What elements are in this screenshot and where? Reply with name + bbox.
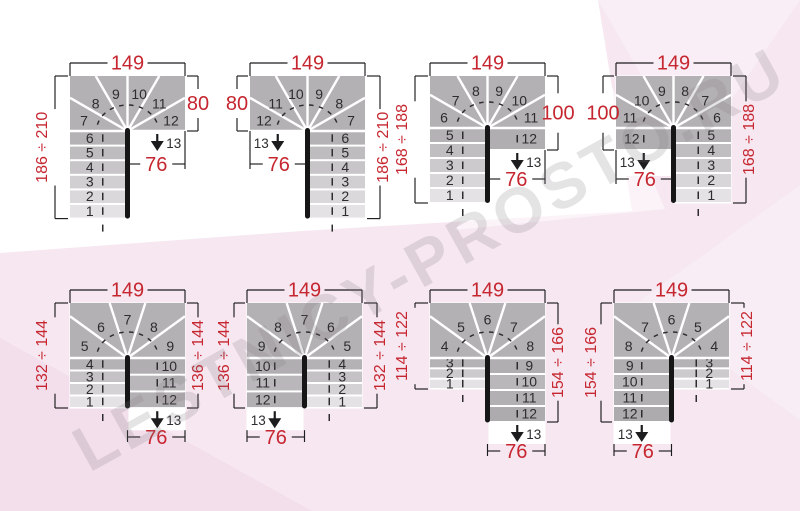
- winder-number: 6: [484, 312, 492, 328]
- exit-step-number: 13: [254, 136, 269, 151]
- winder-number: 9: [166, 338, 174, 354]
- winder-number: 8: [472, 83, 480, 99]
- step: [70, 176, 126, 189]
- winder-number: 7: [80, 113, 88, 129]
- exit-side-dimension-label: 136 ÷ 144: [190, 320, 207, 391]
- exit-step-number: 13: [618, 427, 633, 442]
- exit-width-dimension-label: 76: [268, 154, 290, 176]
- step: [309, 132, 365, 145]
- entry-dimension-label: 186 ÷ 210: [34, 112, 51, 183]
- winder-number: 11: [623, 110, 638, 126]
- width-dimension-label: 149: [471, 280, 504, 302]
- step-number: 11: [162, 375, 177, 391]
- exit-side-dimension-label: 100: [541, 103, 574, 125]
- exit-width-dimension-label: 76: [265, 427, 287, 449]
- step: [675, 144, 731, 157]
- winder-number: 7: [347, 113, 355, 129]
- exit-side-dimension-label: 136 ÷ 144: [216, 320, 233, 391]
- step: [430, 129, 486, 142]
- step: [306, 397, 362, 408]
- newel-post: [305, 128, 310, 219]
- step: [70, 132, 126, 145]
- entry-dimension-label: 114 ÷ 122: [739, 311, 756, 381]
- winder-number: 8: [681, 83, 689, 99]
- step-number: 5: [341, 144, 349, 160]
- step: [430, 369, 486, 377]
- step-number: 4: [341, 159, 349, 175]
- winder-number: 7: [641, 319, 649, 335]
- width-dimension-label: 149: [655, 280, 688, 302]
- step-number: 4: [86, 159, 94, 175]
- winder-number: 8: [335, 96, 343, 112]
- exit-side-dimension-label: 80: [226, 93, 248, 115]
- winder-number: 6: [713, 110, 721, 126]
- step: [309, 161, 365, 174]
- newel-post: [125, 355, 130, 409]
- exit-step-number: 13: [166, 413, 181, 428]
- winder-number: 5: [457, 319, 465, 335]
- step-number: 4: [446, 142, 454, 158]
- step-number: 11: [255, 375, 270, 391]
- winder-number: 9: [495, 83, 503, 99]
- exit-width-dimension-label: 76: [505, 169, 527, 191]
- step-number: 3: [86, 174, 94, 190]
- step: [430, 174, 486, 187]
- step: [309, 176, 365, 189]
- exit-side-dimension-label: 154 ÷ 166: [583, 327, 600, 398]
- step-number: 3: [446, 157, 454, 173]
- step: [430, 359, 486, 367]
- step: [70, 372, 126, 383]
- step: [70, 359, 126, 370]
- winder-number: 9: [658, 83, 666, 99]
- width-dimension-label: 149: [288, 280, 321, 302]
- step-number: 2: [86, 188, 94, 204]
- step-number: 3: [341, 174, 349, 190]
- step: [675, 159, 731, 172]
- winder-number: 10: [288, 86, 304, 102]
- step-number: 5: [86, 144, 94, 160]
- exit-side-dimension-label: 80: [187, 93, 209, 115]
- winder-number: 7: [701, 93, 709, 109]
- winder-number: 9: [258, 338, 266, 354]
- winder-number: 8: [526, 338, 534, 354]
- step: [430, 189, 486, 202]
- step-number: 4: [707, 142, 715, 158]
- exit-step-number: 13: [620, 155, 635, 170]
- winder-number: 8: [274, 319, 282, 335]
- step: [675, 189, 731, 202]
- newel-post: [671, 125, 676, 203]
- winder-number: 9: [315, 86, 323, 102]
- step: [306, 372, 362, 383]
- step: [675, 129, 731, 142]
- step-number: 9: [525, 358, 533, 374]
- step-number: 11: [522, 390, 537, 406]
- width-dimension-label: 149: [111, 53, 144, 75]
- exit-width-dimension-label: 76: [634, 169, 656, 191]
- step: [430, 144, 486, 157]
- step-number: 10: [161, 358, 177, 374]
- step: [70, 384, 126, 395]
- step: [70, 147, 126, 160]
- step: [309, 205, 365, 218]
- step-number: 12: [624, 131, 640, 147]
- winder-number: 7: [301, 312, 309, 328]
- winder-number: 10: [512, 93, 528, 109]
- step: [70, 190, 126, 203]
- step-number: 12: [161, 391, 177, 407]
- step-number: 12: [622, 406, 638, 422]
- width-dimension-label: 149: [111, 280, 144, 302]
- step-number: 2: [341, 188, 349, 204]
- exit-width-dimension-label: 76: [145, 427, 167, 449]
- winder-number: 12: [163, 113, 179, 129]
- step-number: 1: [86, 203, 94, 219]
- entry-dimension-label: 132 ÷ 144: [34, 320, 51, 391]
- width-dimension-label: 149: [657, 53, 690, 75]
- step: [70, 161, 126, 174]
- winder-number: 9: [112, 86, 120, 102]
- step: [430, 380, 486, 388]
- winder-number: 10: [634, 93, 650, 109]
- exit-width-dimension-label: 76: [632, 441, 654, 463]
- step: [306, 384, 362, 395]
- step-number: 9: [626, 358, 634, 374]
- step: [309, 147, 365, 160]
- step: [675, 174, 731, 187]
- exit-step-number: 13: [251, 413, 266, 428]
- diagram-canvas: 65432113789101112149186 ÷ 21080766543211…: [0, 0, 800, 511]
- step: [673, 359, 729, 367]
- step: [306, 359, 362, 370]
- winder-number: 4: [441, 338, 449, 354]
- step-number: 1: [707, 187, 715, 203]
- step: [70, 205, 126, 218]
- step-number: 1: [341, 203, 349, 219]
- entry-dimension-label: 186 ÷ 210: [375, 112, 392, 183]
- step-number: 1: [446, 375, 454, 391]
- width-dimension-label: 149: [291, 53, 324, 75]
- step-number: 1: [446, 187, 454, 203]
- step-number: 1: [338, 393, 346, 409]
- step-number: 11: [622, 390, 637, 406]
- winder-number: 8: [625, 338, 633, 354]
- step-number: 12: [521, 131, 537, 147]
- winder-number: 11: [268, 96, 283, 112]
- step-number: 1: [705, 375, 713, 391]
- winder-number: 11: [152, 96, 167, 112]
- winder-number: 6: [440, 110, 448, 126]
- step: [430, 159, 486, 172]
- winder-number: 7: [124, 312, 132, 328]
- staircase-catalog-sheet: 65432113789101112149186 ÷ 21080766543211…: [0, 0, 800, 511]
- step: [673, 380, 729, 388]
- step-number: 12: [521, 406, 537, 422]
- step-number: 1: [86, 393, 94, 409]
- newel-post: [485, 355, 490, 423]
- entry-dimension-label: 132 ÷ 144: [372, 320, 389, 391]
- exit-side-dimension-label: 154 ÷ 166: [550, 327, 567, 398]
- step-number: 10: [255, 358, 271, 374]
- winder-number: 11: [524, 110, 539, 126]
- winder-number: 6: [97, 319, 105, 335]
- step-number: 2: [707, 172, 715, 188]
- exit-side-dimension-label: 100: [586, 103, 619, 125]
- winder-number: 6: [327, 319, 335, 335]
- exit-step-number: 13: [166, 136, 181, 151]
- winder-number: 12: [256, 113, 272, 129]
- step: [673, 369, 729, 377]
- step-number: 12: [255, 391, 271, 407]
- exit-step-number: 13: [526, 155, 541, 170]
- winder-number: 6: [668, 312, 676, 328]
- step-number: 3: [707, 157, 715, 173]
- newel-post: [485, 125, 490, 203]
- entry-dimension-label: 168 ÷ 188: [741, 104, 758, 175]
- winder-number: 5: [694, 319, 702, 335]
- exit-width-dimension-label: 76: [505, 441, 527, 463]
- exit-width-dimension-label: 76: [145, 154, 167, 176]
- step-number: 5: [446, 127, 454, 143]
- newel-post: [302, 355, 307, 409]
- entry-dimension-label: 114 ÷ 122: [394, 311, 411, 381]
- step: [70, 397, 126, 408]
- winder-number: 8: [92, 96, 100, 112]
- winder-number: 7: [510, 319, 518, 335]
- step-number: 5: [707, 127, 715, 143]
- step: [309, 190, 365, 203]
- winder-number: 7: [452, 93, 460, 109]
- newel-post: [125, 128, 130, 219]
- step-number: 2: [446, 172, 454, 188]
- winder-number: 5: [81, 338, 89, 354]
- entry-dimension-label: 168 ÷ 188: [394, 104, 411, 175]
- winder-number: 5: [343, 338, 351, 354]
- winder-number: 8: [150, 319, 158, 335]
- width-dimension-label: 149: [471, 53, 504, 75]
- step-number: 10: [622, 374, 638, 390]
- newel-post: [669, 355, 674, 423]
- winder-number: 10: [131, 86, 147, 102]
- winder-number: 4: [710, 338, 718, 354]
- step-number: 10: [521, 374, 537, 390]
- exit-step-number: 13: [526, 427, 541, 442]
